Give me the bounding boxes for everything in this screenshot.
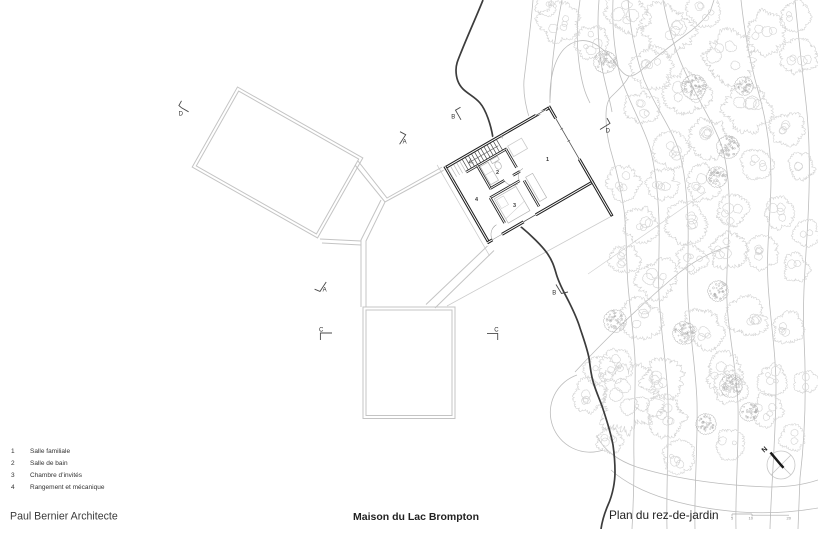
svg-text:Maison du Lac Brompton: Maison du Lac Brompton	[353, 511, 479, 523]
svg-text:Salle familiale: Salle familiale	[30, 448, 70, 455]
svg-text:C: C	[319, 328, 324, 334]
svg-text:Chambre d’invités: Chambre d’invités	[30, 472, 83, 479]
svg-text:D: D	[606, 129, 611, 135]
svg-text:1: 1	[546, 157, 549, 163]
svg-text:C: C	[494, 327, 499, 333]
svg-text:B: B	[451, 115, 455, 121]
svg-text:4: 4	[11, 484, 15, 491]
svg-text:2: 2	[11, 460, 15, 467]
svg-text:B: B	[552, 291, 556, 297]
svg-text:A: A	[403, 140, 407, 146]
svg-text:3: 3	[513, 203, 516, 209]
svg-text:A: A	[323, 287, 327, 293]
svg-text:20: 20	[787, 516, 792, 521]
svg-text:3: 3	[11, 472, 15, 479]
svg-text:2: 2	[496, 170, 499, 176]
svg-text:10: 10	[749, 516, 754, 521]
svg-text:Paul Bernier Architecte: Paul Bernier Architecte	[10, 511, 118, 523]
svg-text:Rangement et mécanique: Rangement et mécanique	[30, 484, 105, 491]
svg-text:1: 1	[11, 448, 15, 455]
svg-text:D: D	[179, 111, 184, 117]
svg-text:Plan du rez-de-jardin: Plan du rez-de-jardin	[609, 508, 719, 522]
svg-text:Salle de bain: Salle de bain	[30, 460, 68, 467]
